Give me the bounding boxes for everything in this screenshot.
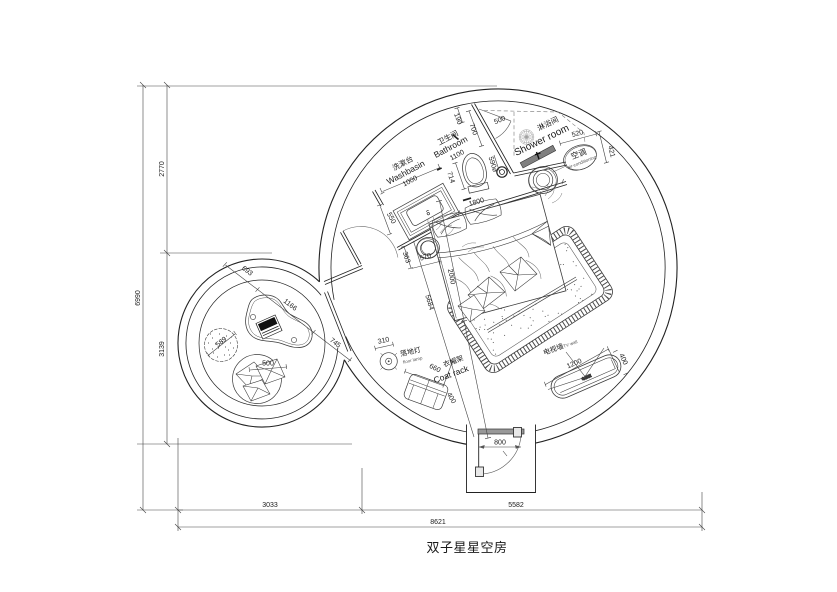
svg-text:3033: 3033: [262, 502, 278, 509]
svg-text:800: 800: [494, 440, 506, 447]
svg-text:500: 500: [262, 361, 274, 368]
svg-text:6990: 6990: [135, 290, 142, 306]
svg-text:双子星星空房: 双子星星空房: [426, 540, 507, 555]
svg-text:8621: 8621: [430, 519, 446, 526]
svg-text:3139: 3139: [159, 341, 166, 357]
svg-text:5582: 5582: [508, 502, 524, 509]
svg-text:2770: 2770: [159, 161, 166, 177]
